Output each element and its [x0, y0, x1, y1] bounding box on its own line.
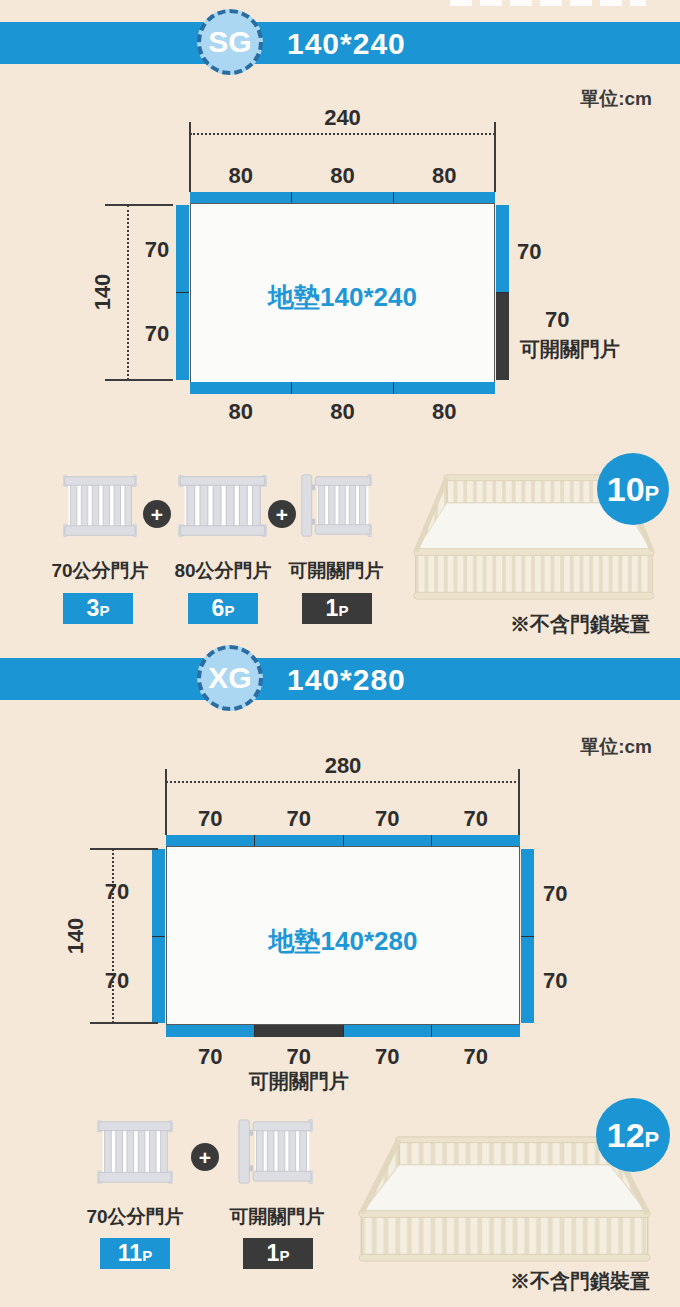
fence-segment [393, 382, 495, 394]
segment-dim-label: 70 [543, 969, 567, 993]
xg-left-fence-rail [152, 849, 165, 1023]
part-count-badge: 11P [100, 1238, 170, 1269]
part-count: 1 [267, 1238, 280, 1269]
xg-height-dimension: 140 [64, 918, 88, 955]
door-segment [496, 292, 509, 380]
xg-mat-label: 地墊140*280 [166, 924, 520, 959]
segment-dim-label: 70 [166, 806, 255, 832]
xg-size-title: 140*280 [287, 663, 406, 697]
xg-total-pieces-badge: 12P [596, 1098, 670, 1172]
fence-segment [343, 1025, 432, 1037]
fence-segment [343, 835, 432, 846]
part-count-unit: P [224, 595, 234, 626]
segment-dim-label: 70 [255, 1044, 344, 1070]
plus-icon: + [191, 1143, 219, 1171]
playpen-size-infographic: SG 140*240 單位:cm 240 80 80 80 地墊140*240 … [0, 0, 680, 1307]
segment-dim-label: 80 [292, 399, 394, 425]
plus-icon: + [143, 500, 171, 528]
sg-top-segment-labels: 80 80 80 [190, 163, 495, 189]
xg-total-count: 12 [607, 1098, 645, 1172]
part-count-unit: P [142, 1240, 152, 1271]
sg-no-lock-note: ※不含門鎖裝置 [510, 611, 650, 638]
part-count-badge: 6P [188, 593, 258, 624]
sg-height-tick-bottom [105, 379, 173, 381]
sg-bottom-segment-labels: 80 80 80 [190, 399, 495, 425]
part-count: 6 [212, 593, 225, 624]
part-count-unit: P [99, 595, 109, 626]
segment-dim-label: 70 [166, 1044, 255, 1070]
xg-right-fence-rail [521, 849, 534, 1023]
xg-total-unit: P [645, 1103, 660, 1177]
xg-height-tick-top [90, 848, 158, 850]
fence-segment [291, 382, 393, 394]
door-panel-icon [300, 471, 372, 540]
sg-door-note: 可開關門片 [520, 336, 620, 363]
part-name-label: 可開關門片 [212, 1204, 342, 1230]
segment-dim-label: 70 [255, 806, 344, 832]
fence-segment [152, 936, 165, 1024]
sg-right-fence-rail [496, 205, 509, 380]
sg-width-dimension: 240 [190, 106, 495, 130]
part-count-badge: 3P [63, 593, 133, 624]
segment-dim-label: 80 [190, 399, 292, 425]
sg-height-dimension-line [127, 205, 129, 380]
part-name-label: 70公分門片 [35, 558, 165, 584]
door-segment [254, 1025, 343, 1037]
fence-segment [431, 1025, 520, 1037]
xg-width-dimension-line [166, 781, 520, 783]
xg-width-dimension: 280 [166, 754, 520, 778]
xg-bottom-fence-rail [166, 1025, 520, 1037]
xg-no-lock-note: ※不含門鎖裝置 [510, 1268, 650, 1295]
part-count: 1 [326, 593, 339, 624]
part-count-badge: 1P [243, 1238, 313, 1269]
sg-total-unit: P [645, 458, 660, 530]
segment-dim-label: 70 [343, 806, 432, 832]
fence-panel-icon [97, 1117, 173, 1187]
segment-dim-label: 70 [543, 882, 567, 906]
sg-width-dimension-line [190, 133, 495, 135]
fence-panel-icon [178, 472, 267, 540]
sg-unit-label: 單位:cm [580, 86, 652, 112]
part-name-label: 可開關門片 [271, 558, 401, 584]
xg-model-badge: XG [197, 645, 263, 711]
fence-segment [176, 292, 189, 380]
xg-height-tick-bottom [90, 1022, 158, 1024]
xg-top-fence-rail [166, 835, 520, 846]
sg-bottom-fence-rail [190, 382, 495, 394]
fence-segment [152, 849, 165, 936]
segment-dim-label: 70 [140, 322, 174, 346]
sg-height-dimension: 140 [91, 274, 115, 311]
sg-total-pieces-badge: 10P [597, 453, 669, 525]
segment-dim-label: 70 [517, 240, 541, 264]
fence-panel-icon [63, 472, 137, 540]
part-count-unit: P [279, 1240, 289, 1271]
sg-mat-label: 地墊140*240 [190, 280, 495, 315]
part-count: 11 [118, 1238, 142, 1269]
segment-dim-label: 80 [393, 163, 495, 189]
cropped-graphic-remnant [450, 0, 646, 6]
sg-model-code: SG [208, 25, 251, 59]
xg-model-code: XG [208, 661, 251, 695]
door-dim-label: 70 [545, 308, 569, 332]
part-count-badge: 1P [302, 593, 372, 624]
xg-unit-label: 單位:cm [580, 734, 652, 760]
fence-segment [176, 205, 189, 292]
xg-height-dimension-line [112, 849, 114, 1023]
fence-segment [166, 835, 254, 846]
fence-segment [190, 382, 291, 394]
segment-dim-label: 70 [432, 1044, 521, 1070]
part-name-label: 70公分門片 [70, 1204, 200, 1230]
plus-glyph: + [151, 504, 163, 525]
xg-bottom-segment-labels: 70 70 70 70 [166, 1044, 520, 1070]
segment-dim-label: 80 [190, 163, 292, 189]
segment-dim-label: 80 [292, 163, 394, 189]
segment-dim-label: 70 [140, 238, 174, 262]
fence-segment [496, 205, 509, 292]
fence-segment [254, 835, 343, 846]
plus-icon: + [268, 500, 296, 528]
plus-glyph: + [199, 1147, 211, 1168]
part-count: 3 [87, 593, 100, 624]
sg-model-badge: SG [197, 9, 263, 75]
door-panel-icon [237, 1116, 313, 1187]
segment-dim-label: 70 [100, 969, 134, 993]
sg-left-fence-rail [176, 205, 189, 380]
fence-segment [521, 936, 534, 1024]
xg-top-segment-labels: 70 70 70 70 [166, 806, 520, 832]
part-name-label: 80公分門片 [158, 558, 288, 584]
xg-door-note: 可開關門片 [240, 1068, 358, 1095]
segment-dim-label: 70 [100, 880, 134, 904]
sg-total-count: 10 [607, 453, 645, 525]
segment-dim-label: 80 [393, 399, 495, 425]
fence-segment [521, 849, 534, 936]
fence-segment [166, 1025, 254, 1037]
fence-segment [431, 835, 520, 846]
sg-height-tick-top [105, 204, 173, 206]
plus-glyph: + [276, 504, 288, 525]
segment-dim-label: 70 [343, 1044, 432, 1070]
sg-size-title: 140*240 [287, 27, 406, 61]
part-count-unit: P [338, 595, 348, 626]
segment-dim-label: 70 [432, 806, 521, 832]
